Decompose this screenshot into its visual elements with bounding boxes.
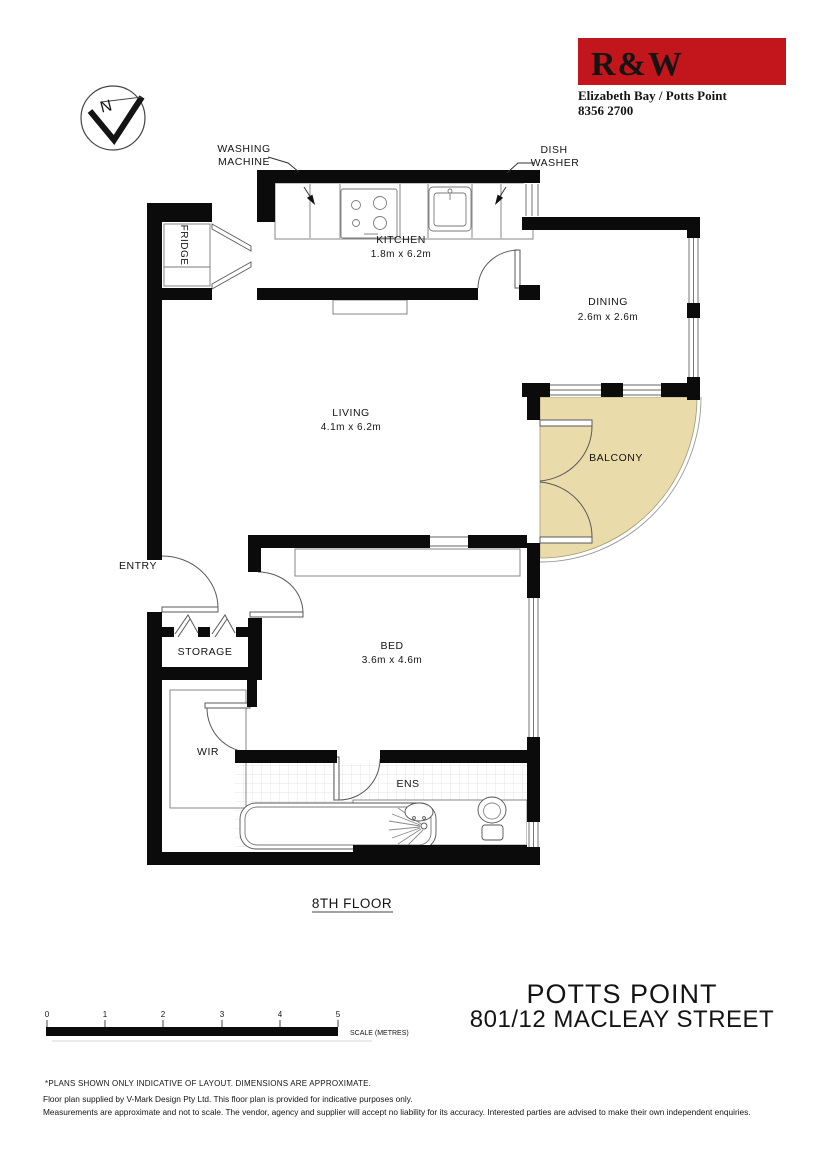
scale-tick-1: 1 <box>103 1010 108 1019</box>
floor-caption: 8TH FLOOR <box>312 896 393 912</box>
toilet-icon <box>478 797 506 840</box>
label-balcony: BALCONY <box>589 452 643 464</box>
dims-bed: 3.6m x 4.6m <box>362 655 423 666</box>
label-washing-machine-2: MACHINE <box>218 156 270 168</box>
label-storage: STORAGE <box>178 646 233 658</box>
office-name: Elizabeth Bay / Potts Point <box>578 88 727 103</box>
suburb-title: POTTS POINT <box>526 979 717 1009</box>
floorplan-svg: N KITCHEN 1.8m x 6.2m DINING 2.6m x 2.6m… <box>0 0 813 1150</box>
dims-living: 4.1m x 6.2m <box>321 422 382 433</box>
scale-tick-0: 0 <box>45 1010 50 1019</box>
rw-logo: R&W <box>591 46 684 83</box>
scale-tick-4: 4 <box>278 1010 283 1019</box>
label-dishwasher-1: DISH <box>540 144 567 156</box>
north-compass: N <box>81 86 145 150</box>
robe <box>295 549 520 576</box>
scale-bar-rect <box>46 1027 338 1036</box>
scale-tick-3: 3 <box>220 1010 225 1019</box>
scale-bar: 0 1 2 3 4 5 SCALE (METRES) <box>45 1010 409 1041</box>
branding-block: R&W Elizabeth Bay / Potts Point 8356 270… <box>578 38 786 118</box>
scale-bar-label: SCALE (METRES) <box>350 1030 409 1037</box>
label-kitchen: KITCHEN <box>376 234 426 246</box>
label-entry: ENTRY <box>119 560 157 572</box>
label-wir: WIR <box>197 746 219 758</box>
label-dining: DINING <box>588 296 628 308</box>
scale-tick-5: 5 <box>336 1010 341 1019</box>
bedroom-door <box>250 572 303 617</box>
basin-icon <box>405 803 433 821</box>
label-bed: BED <box>380 640 403 652</box>
disclaimer-block: *PLANS SHOWN ONLY INDICATIVE OF LAYOUT. … <box>43 1079 751 1117</box>
kitchen-door <box>478 250 520 288</box>
label-dishwasher-2: WASHER <box>531 157 580 169</box>
street-address: 801/12 MACLEAY STREET <box>470 1006 774 1033</box>
floor-label: 8TH FLOOR <box>312 896 392 911</box>
label-washing-machine-1: WASHING <box>217 143 270 155</box>
disclaimer-line2: Floor plan supplied by V-Mark Design Pty… <box>43 1094 413 1104</box>
disclaimer-line3: Measurements are approximate and not to … <box>43 1107 751 1117</box>
dims-dining: 2.6m x 2.6m <box>578 312 639 323</box>
label-ens: ENS <box>396 778 419 790</box>
floorplan-page: N KITCHEN 1.8m x 6.2m DINING 2.6m x 2.6m… <box>0 0 813 1150</box>
kitchen-counter <box>275 183 533 239</box>
corridor-doors <box>212 224 251 289</box>
label-fridge: FRIDGE <box>178 225 189 266</box>
bench <box>333 300 407 314</box>
north-arrow-icon <box>90 97 142 140</box>
entry-door <box>162 556 218 612</box>
dims-kitchen: 1.8m x 6.2m <box>371 249 432 260</box>
wir-door <box>205 703 250 752</box>
disclaimer-line1: *PLANS SHOWN ONLY INDICATIVE OF LAYOUT. … <box>45 1079 371 1088</box>
label-living: LIVING <box>332 407 369 419</box>
address-block: POTTS POINT 801/12 MACLEAY STREET <box>470 979 774 1033</box>
office-phone: 8356 2700 <box>578 103 633 118</box>
scale-tick-2: 2 <box>161 1010 166 1019</box>
